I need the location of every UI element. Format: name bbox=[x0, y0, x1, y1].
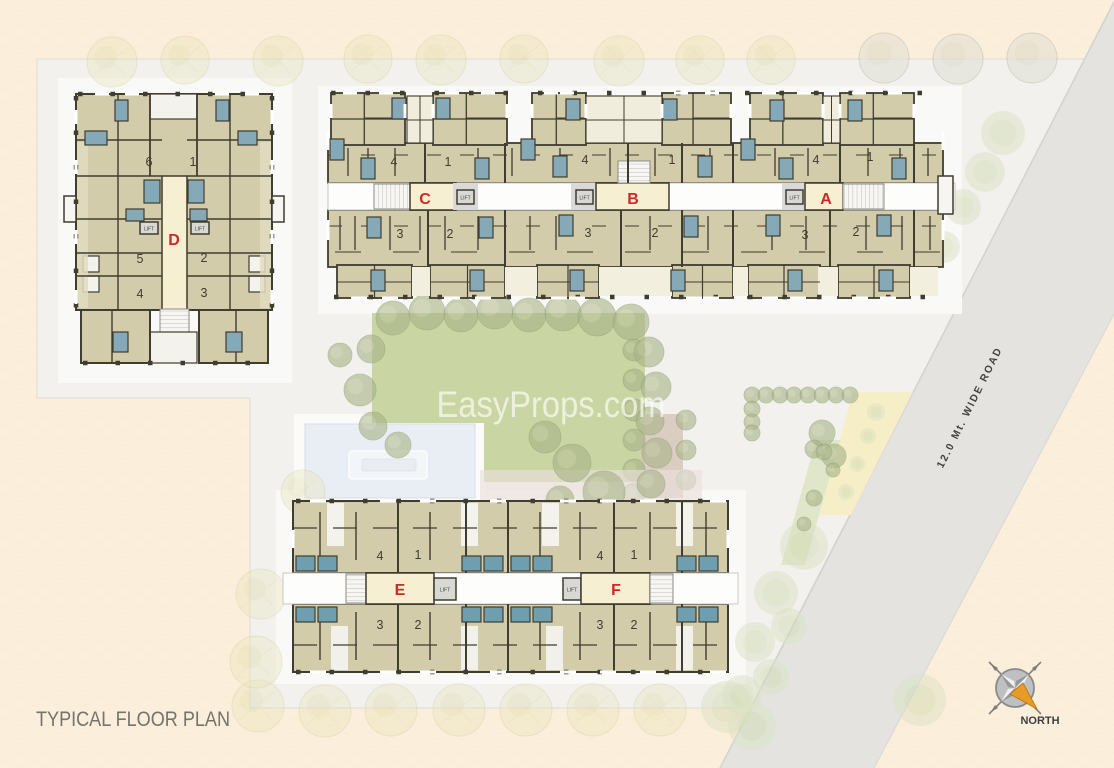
svg-text:NORTH: NORTH bbox=[1020, 715, 1059, 727]
svg-text:4: 4 bbox=[582, 153, 589, 167]
svg-text:LIFT: LIFT bbox=[195, 227, 205, 233]
svg-text:1: 1 bbox=[669, 153, 676, 167]
svg-text:3: 3 bbox=[597, 618, 604, 632]
svg-text:2: 2 bbox=[201, 251, 208, 265]
svg-text:6: 6 bbox=[146, 155, 153, 169]
svg-text:3: 3 bbox=[201, 286, 208, 300]
svg-text:F: F bbox=[611, 582, 621, 599]
svg-text:LIFT: LIFT bbox=[460, 196, 470, 202]
svg-text:D: D bbox=[168, 232, 180, 249]
svg-text:3: 3 bbox=[585, 226, 592, 240]
svg-text:LIFT: LIFT bbox=[567, 588, 577, 594]
svg-text:A: A bbox=[820, 191, 832, 208]
svg-text:1: 1 bbox=[415, 548, 422, 562]
svg-text:2: 2 bbox=[631, 618, 638, 632]
svg-text:LIFT: LIFT bbox=[440, 588, 450, 594]
svg-text:B: B bbox=[627, 191, 639, 208]
svg-text:1: 1 bbox=[190, 155, 197, 169]
svg-text:3: 3 bbox=[397, 227, 404, 241]
svg-text:1: 1 bbox=[631, 548, 638, 562]
svg-text:1: 1 bbox=[445, 155, 452, 169]
svg-text:LIFT: LIFT bbox=[144, 227, 154, 233]
svg-text:TYPICAL FLOOR PLAN: TYPICAL FLOOR PLAN bbox=[36, 707, 230, 731]
svg-text:4: 4 bbox=[597, 549, 604, 563]
svg-text:1: 1 bbox=[867, 150, 874, 164]
svg-text:4: 4 bbox=[813, 153, 820, 167]
svg-text:3: 3 bbox=[377, 618, 384, 632]
svg-text:EasyProps.com: EasyProps.com bbox=[437, 384, 666, 425]
svg-text:4: 4 bbox=[391, 155, 398, 169]
svg-text:3: 3 bbox=[802, 228, 809, 242]
svg-text:2: 2 bbox=[853, 225, 860, 239]
svg-text:LIFT: LIFT bbox=[579, 196, 589, 202]
svg-text:5: 5 bbox=[137, 252, 144, 266]
svg-text:2: 2 bbox=[415, 618, 422, 632]
svg-text:2: 2 bbox=[447, 227, 454, 241]
svg-text:LIFT: LIFT bbox=[789, 196, 799, 202]
svg-text:2: 2 bbox=[652, 226, 659, 240]
svg-text:C: C bbox=[419, 191, 431, 208]
svg-text:4: 4 bbox=[377, 549, 384, 563]
svg-text:4: 4 bbox=[137, 287, 144, 301]
svg-text:E: E bbox=[395, 582, 406, 599]
